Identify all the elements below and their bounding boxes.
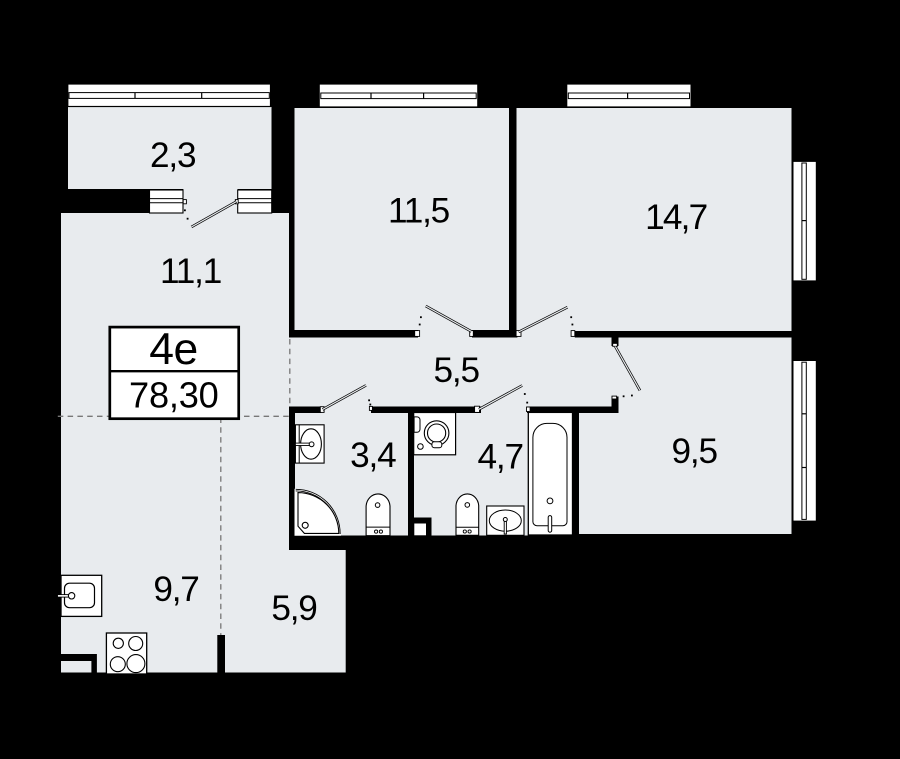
svg-text:11,1: 11,1: [160, 252, 221, 291]
svg-text:9,7: 9,7: [153, 570, 198, 609]
svg-text:9,5: 9,5: [672, 432, 718, 471]
svg-text:14,7: 14,7: [645, 198, 707, 237]
svg-text:78,30: 78,30: [129, 374, 219, 415]
svg-text:5,9: 5,9: [271, 589, 316, 628]
svg-text:2,3: 2,3: [150, 136, 196, 175]
svg-text:4е: 4е: [149, 325, 198, 374]
svg-text:3,4: 3,4: [350, 436, 396, 475]
svg-text:5,5: 5,5: [434, 351, 480, 390]
svg-text:4,7: 4,7: [478, 438, 523, 477]
svg-text:11,5: 11,5: [388, 191, 450, 230]
